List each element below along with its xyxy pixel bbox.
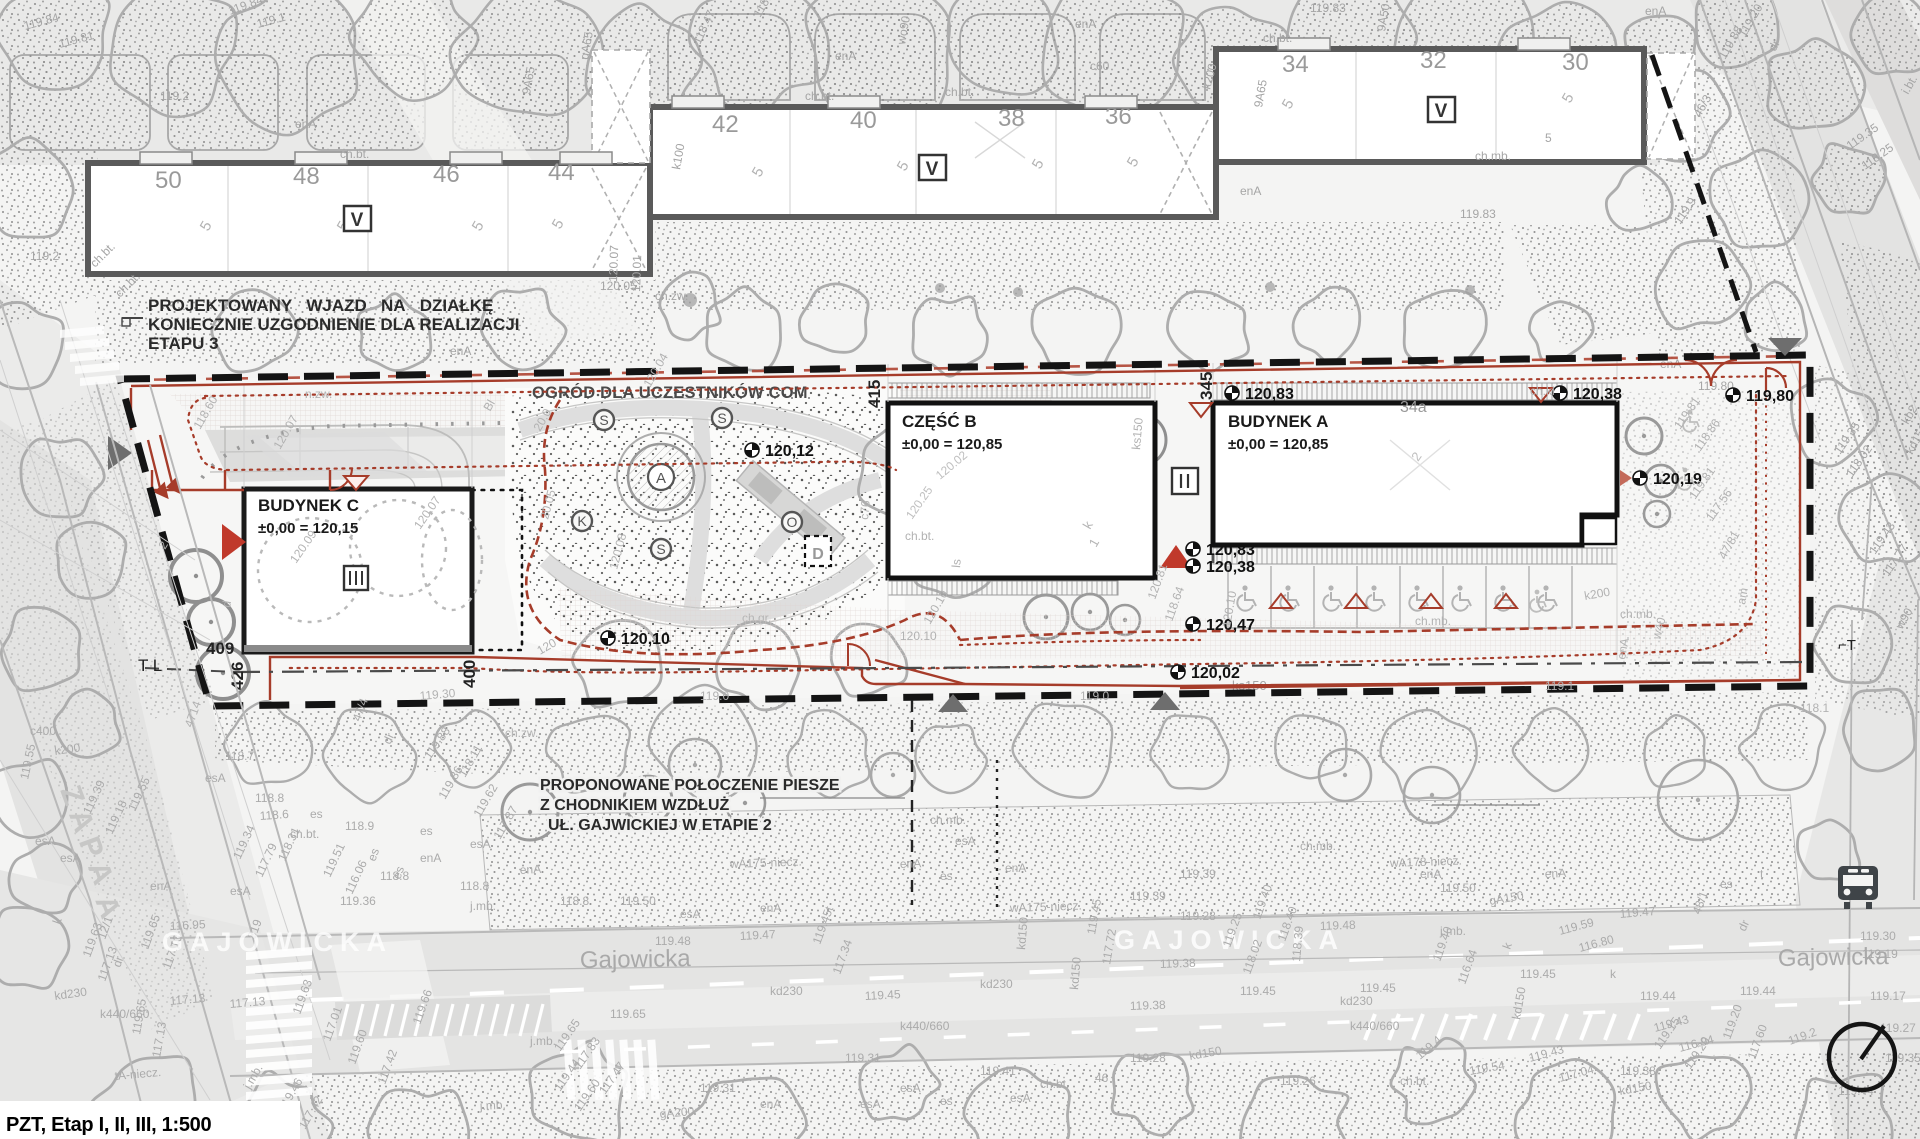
svg-text:es: es xyxy=(940,1094,953,1108)
svg-text:119.30: 119.30 xyxy=(1860,929,1896,943)
svg-text:119.44: 119.44 xyxy=(1740,984,1776,998)
svg-text:esA: esA xyxy=(230,884,251,898)
svg-text:119.50: 119.50 xyxy=(1440,881,1476,895)
svg-text:enA: enA xyxy=(1645,4,1666,18)
svg-text:119.0: 119.0 xyxy=(700,689,729,703)
svg-text:119.47: 119.47 xyxy=(739,927,776,943)
svg-text:esA: esA xyxy=(470,837,491,851)
svg-text:am: am xyxy=(1734,587,1751,606)
svg-text:118.9: 118.9 xyxy=(345,819,374,833)
svg-text:119.2: 119.2 xyxy=(160,89,189,103)
svg-text:119,80: 119,80 xyxy=(1746,388,1794,405)
svg-text:enA: enA xyxy=(835,49,856,63)
svg-text:enA: enA xyxy=(420,851,441,865)
svg-text:GAJOWICKA: GAJOWICKA xyxy=(162,927,393,957)
svg-text:V: V xyxy=(926,159,939,180)
svg-text:118.7: 118.7 xyxy=(225,749,254,763)
svg-text:119.2: 119.2 xyxy=(30,249,59,263)
svg-text:ch.bt.: ch.bt. xyxy=(805,89,834,103)
svg-text:ch.mb.: ch.mb. xyxy=(1620,607,1656,621)
svg-text:ch.zw.: ch.zw. xyxy=(655,289,688,303)
svg-text:120.07: 120.07 xyxy=(606,245,621,282)
svg-text:OGRÓD DLA UCZESTNIKÓW COM: OGRÓD DLA UCZESTNIKÓW COM xyxy=(532,383,808,402)
svg-text:enA: enA xyxy=(760,901,781,915)
svg-text:PROJEKTOWANY WJAZD NA DZ: PROJEKTOWANY WJAZD NA DZIAŁKĘ xyxy=(148,296,493,315)
svg-text:esA: esA xyxy=(35,834,56,848)
svg-text:120,38: 120,38 xyxy=(1573,386,1622,403)
svg-text:K: K xyxy=(577,513,587,529)
svg-text:ch.mb.: ch.mb. xyxy=(930,813,966,827)
svg-text:esA: esA xyxy=(955,834,976,848)
svg-text:119.17: 119.17 xyxy=(1870,989,1906,1003)
svg-text:118.1: 118.1 xyxy=(1800,701,1829,715)
svg-text:119.83: 119.83 xyxy=(1310,1,1346,15)
svg-text:enA: enA xyxy=(1075,17,1096,31)
svg-text:enA: enA xyxy=(1420,867,1441,881)
svg-text:119.31: 119.31 xyxy=(700,1081,736,1095)
svg-text:119.45: 119.45 xyxy=(1360,981,1396,995)
svg-text:V: V xyxy=(1435,101,1448,122)
svg-text:S: S xyxy=(717,410,726,426)
svg-text:esA: esA xyxy=(860,1097,881,1111)
svg-text:esA: esA xyxy=(205,771,226,785)
svg-text:ch.mb.: ch.mb. xyxy=(1415,614,1451,628)
svg-text:es: es xyxy=(1720,877,1733,891)
svg-text:S: S xyxy=(656,541,665,557)
svg-text:KONIECZNIE UZGODNIENIE DLA REA: KONIECZNIE UZGODNIENIE DLA REALIZACJI xyxy=(148,315,520,334)
svg-text:119.65: 119.65 xyxy=(610,1007,646,1021)
svg-text:T L: T L xyxy=(138,656,162,675)
svg-text:ch.mb.: ch.mb. xyxy=(1300,839,1336,853)
svg-text:±0,00 = 120,85: ±0,00 = 120,85 xyxy=(1228,436,1328,453)
svg-text:wA175-niecz.: wA175-niecz. xyxy=(729,854,802,871)
svg-text:j.mb.: j.mb. xyxy=(478,1098,506,1113)
svg-text:PROPONOWANE POŁOCZENIE PIESZE: PROPONOWANE POŁOCZENIE PIESZE xyxy=(540,777,840,794)
svg-text:119.38: 119.38 xyxy=(1130,998,1167,1013)
svg-text:119.45: 119.45 xyxy=(1520,967,1556,981)
svg-text:119.26: 119.26 xyxy=(1280,1074,1316,1088)
svg-text:kd230: kd230 xyxy=(770,984,803,998)
svg-text:S: S xyxy=(599,412,608,428)
svg-text:kd150: kd150 xyxy=(1067,956,1084,990)
svg-text:UŁ. GAJWICKIEJ W ETAPIE 2: UŁ. GAJWICKIEJ W ETAPIE 2 xyxy=(548,817,772,834)
svg-text:120,83: 120,83 xyxy=(1245,386,1294,403)
svg-text:ch.mb.: ch.mb. xyxy=(1475,149,1511,163)
svg-text:400: 400 xyxy=(460,660,479,688)
svg-text:j.mb.: j.mb. xyxy=(469,899,496,913)
svg-text:enA: enA xyxy=(150,879,171,893)
svg-text:kd230: kd230 xyxy=(980,977,1013,991)
svg-text:enA: enA xyxy=(295,117,316,131)
svg-text:c60: c60 xyxy=(1090,59,1110,73)
svg-text:119.39: 119.39 xyxy=(1130,889,1166,903)
svg-text:ch.bt.: ch.bt. xyxy=(945,85,974,99)
svg-text:118.8: 118.8 xyxy=(560,894,589,908)
svg-text:118.8: 118.8 xyxy=(460,879,489,893)
svg-text:wA175-niecz.: wA175-niecz. xyxy=(1009,898,1082,915)
svg-text:46: 46 xyxy=(1095,1071,1109,1085)
svg-text:enA: enA xyxy=(519,862,541,877)
svg-text:V: V xyxy=(351,210,364,231)
svg-text:kd230: kd230 xyxy=(1340,994,1373,1008)
svg-text:Z CHODNIKIEM WZDŁUŻ: Z CHODNIKIEM WZDŁUŻ xyxy=(540,796,730,814)
svg-text:ch.bt.: ch.bt. xyxy=(1040,1077,1069,1091)
svg-text:ch.bt.: ch.bt. xyxy=(1400,1074,1429,1088)
svg-text:esA: esA xyxy=(680,907,701,921)
svg-text:119.83: 119.83 xyxy=(1460,207,1496,221)
svg-text:ch.bt.: ch.bt. xyxy=(340,147,369,161)
svg-text:34a: 34a xyxy=(1400,399,1427,416)
svg-text:⌐T: ⌐T xyxy=(1838,637,1856,654)
svg-text:120,38: 120,38 xyxy=(1206,559,1255,576)
svg-text:c400: c400 xyxy=(30,724,56,738)
svg-text:409: 409 xyxy=(206,639,234,658)
svg-text:38: 38 xyxy=(998,105,1025,132)
svg-text:119.0: 119.0 xyxy=(1080,689,1109,703)
svg-text:119.48: 119.48 xyxy=(1320,918,1357,933)
svg-text:120.01: 120.01 xyxy=(629,255,644,292)
svg-text:O: O xyxy=(787,514,798,530)
svg-text:34: 34 xyxy=(1282,51,1309,78)
svg-text:415: 415 xyxy=(865,380,884,408)
svg-text:119.28: 119.28 xyxy=(1180,909,1216,923)
svg-text:46: 46 xyxy=(433,161,460,188)
svg-text:es: es xyxy=(420,824,433,838)
svg-text:30: 30 xyxy=(1562,49,1589,76)
svg-text:42: 42 xyxy=(712,111,739,138)
svg-text:D: D xyxy=(812,546,824,563)
svg-text:118.6: 118.6 xyxy=(259,807,289,823)
svg-text:48: 48 xyxy=(293,163,320,190)
svg-text:119.38: 119.38 xyxy=(1160,956,1197,971)
svg-text:50: 50 xyxy=(155,167,182,194)
svg-text:119.45: 119.45 xyxy=(1240,984,1276,998)
svg-text:119.48: 119.48 xyxy=(655,934,691,948)
svg-text:Gajowicka: Gajowicka xyxy=(580,945,692,974)
svg-text:esA: esA xyxy=(900,1081,921,1095)
svg-text:CZĘŚĆ B: CZĘŚĆ B xyxy=(902,412,977,431)
svg-text:118.8: 118.8 xyxy=(255,791,284,805)
svg-text:BUDYNEK A: BUDYNEK A xyxy=(1228,412,1328,431)
svg-text:enA: enA xyxy=(450,344,471,358)
svg-text:120,83: 120,83 xyxy=(1206,542,1255,559)
svg-text:c76: c76 xyxy=(857,499,873,520)
svg-text:PZT, Etap I, II, III, 1:500: PZT, Etap I, II, III, 1:500 xyxy=(6,1114,211,1136)
svg-text:ks150: ks150 xyxy=(1129,417,1146,450)
svg-text:k440/660: k440/660 xyxy=(1350,1019,1400,1033)
svg-text:32: 32 xyxy=(1420,47,1447,74)
svg-text:119.28: 119.28 xyxy=(1130,1051,1166,1065)
svg-text:enA: enA xyxy=(1240,184,1261,198)
svg-text:esA: esA xyxy=(60,851,81,865)
svg-text:119.31: 119.31 xyxy=(845,1051,881,1065)
svg-text:119.19: 119.19 xyxy=(1862,947,1898,961)
svg-text:esA: esA xyxy=(1010,1091,1031,1105)
svg-text:ch.zw.: ch.zw. xyxy=(505,726,538,740)
svg-text:119.41: 119.41 xyxy=(980,1064,1016,1078)
svg-text:n.zw.: n.zw. xyxy=(305,387,332,401)
svg-text:119.35: 119.35 xyxy=(1885,1051,1920,1065)
svg-text:5: 5 xyxy=(1545,131,1552,145)
svg-text:enA: enA xyxy=(1544,866,1566,881)
svg-text:119.38: 119.38 xyxy=(1620,1064,1656,1078)
svg-text:es: es xyxy=(310,807,323,821)
svg-text:ch.kl: ch.kl xyxy=(1530,384,1555,398)
svg-text:119.44: 119.44 xyxy=(1640,989,1676,1003)
svg-text:±0,00 = 120,85: ±0,00 = 120,85 xyxy=(902,436,1002,453)
svg-text:enA: enA xyxy=(900,856,922,871)
svg-text:A: A xyxy=(656,470,666,487)
svg-text:119.39: 119.39 xyxy=(1180,867,1216,881)
svg-text:120.10: 120.10 xyxy=(900,629,937,643)
svg-text:119.1: 119.1 xyxy=(1545,679,1574,693)
svg-text:es: es xyxy=(940,869,953,883)
svg-text:ETAPU 3: ETAPU 3 xyxy=(148,334,219,353)
svg-text:40: 40 xyxy=(850,107,877,134)
svg-text:120,02: 120,02 xyxy=(1191,665,1240,682)
svg-text:119.50: 119.50 xyxy=(620,894,656,908)
svg-text:k440/660: k440/660 xyxy=(900,1019,950,1033)
svg-text:kd150: kd150 xyxy=(1014,916,1031,950)
svg-text:120,10: 120,10 xyxy=(621,631,670,648)
svg-text:k: k xyxy=(1610,967,1617,981)
svg-text:BUDYNEK C: BUDYNEK C xyxy=(258,496,359,515)
svg-text:119.45: 119.45 xyxy=(864,987,901,1003)
svg-text:119.36: 119.36 xyxy=(340,894,376,908)
svg-text:enA: enA xyxy=(1005,861,1026,875)
svg-text:enA: enA xyxy=(760,1097,781,1111)
svg-text:ls: ls xyxy=(949,558,964,568)
svg-text:ch.bt.: ch.bt. xyxy=(1263,31,1292,45)
svg-text:ch.bt.: ch.bt. xyxy=(905,529,934,543)
svg-text:345: 345 xyxy=(1197,372,1216,400)
svg-text:120,12: 120,12 xyxy=(765,443,814,460)
